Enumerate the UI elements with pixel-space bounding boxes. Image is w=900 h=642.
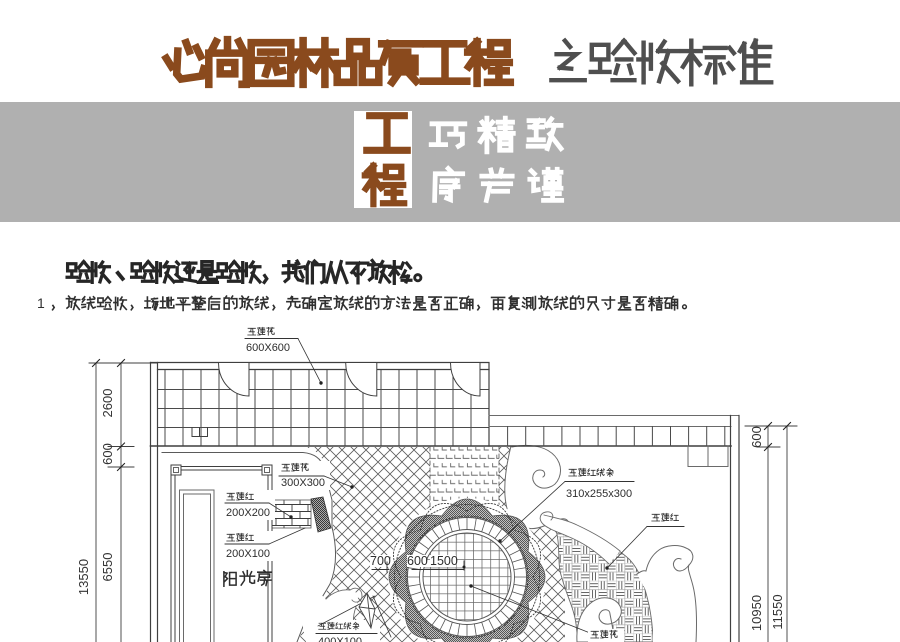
svg-text:2600: 2600 — [100, 389, 115, 418]
svg-text:11550: 11550 — [770, 594, 785, 629]
svg-text:400X100: 400X100 — [318, 636, 362, 642]
svg-text:600: 600 — [749, 426, 764, 448]
svg-text:1500: 1500 — [430, 554, 458, 568]
svg-text:10950: 10950 — [749, 595, 764, 631]
svg-text:600: 600 — [100, 443, 115, 465]
svg-text:310x255x300: 310x255x300 — [566, 488, 632, 500]
svg-text:200X200: 200X200 — [226, 507, 270, 519]
svg-text:200X100: 200X100 — [226, 548, 270, 560]
svg-text:600: 600 — [407, 554, 428, 568]
svg-text:13550: 13550 — [76, 559, 91, 595]
svg-text:700: 700 — [370, 554, 391, 568]
svg-text:600X600: 600X600 — [246, 342, 290, 354]
svg-text:6550: 6550 — [100, 553, 115, 582]
svg-text:300X300: 300X300 — [281, 477, 325, 489]
